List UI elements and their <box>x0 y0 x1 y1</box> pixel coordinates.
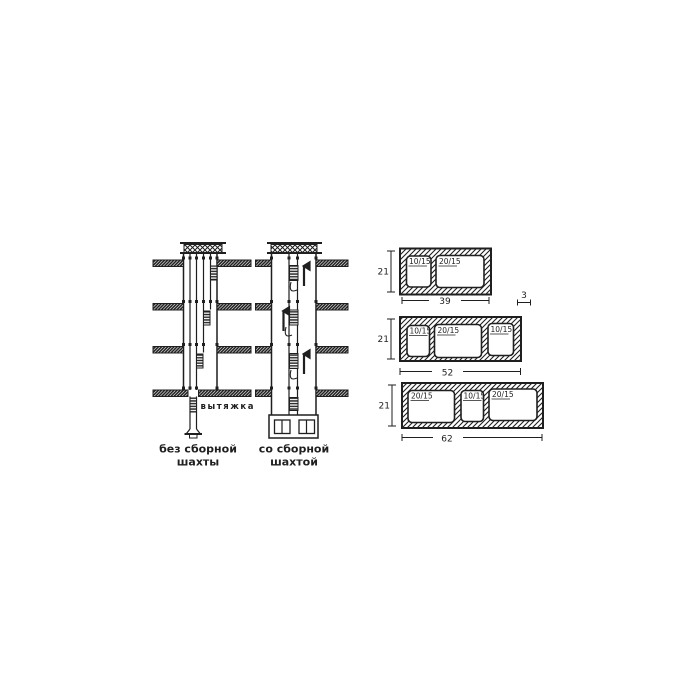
caption-without-line2: шахты <box>177 456 220 469</box>
width-dimension <box>400 368 521 375</box>
floor-slabs <box>256 260 349 397</box>
wall-thickness-label: 3 <box>521 291 527 301</box>
cell-size-label: 10/15 <box>409 257 431 266</box>
cell-size-label: 10/15 <box>491 325 513 334</box>
height-label: 21 <box>378 335 389 345</box>
cell-size-label: 20/15 <box>411 392 433 401</box>
height-label: 21 <box>379 402 390 412</box>
figure-page: вытяжка без сборной шахты <box>0 0 700 700</box>
block-section-39: 10/15 20/15 21 39 3 <box>378 249 531 308</box>
cap-hatch <box>184 245 222 253</box>
shaft-with-collector: со сборной шахтой <box>256 243 349 469</box>
caption-with-line1: со сборной <box>259 443 329 456</box>
shaft-without-collector: вытяжка без сборной шахты <box>153 243 255 469</box>
width-label: 39 <box>439 297 451 307</box>
cell-size-label: 20/15 <box>438 326 460 335</box>
floor-slabs <box>153 260 251 397</box>
cell-size-label: 20/15 <box>439 257 461 266</box>
caption-with-line2: шахтой <box>270 456 318 469</box>
width-dimension <box>402 434 542 441</box>
wall-thickness-dimension: 3 <box>518 291 531 306</box>
cap-hatch <box>271 245 317 253</box>
cell-size-label: 10/15 <box>410 327 432 336</box>
block-section-52: 10/15 20/15 10/15 21 52 <box>378 317 521 379</box>
caption-without-line1: без сборной <box>159 443 237 456</box>
cell-size-label: 20/15 <box>492 390 514 399</box>
cell-size-label: 10/15 <box>464 392 486 401</box>
base-block <box>269 415 318 438</box>
ventilation-diagram: вытяжка без сборной шахты <box>0 0 700 700</box>
exhaust-label: вытяжка <box>201 402 256 412</box>
height-label: 21 <box>378 268 389 278</box>
duct-outlet <box>185 429 203 438</box>
width-label: 62 <box>441 435 452 445</box>
width-label: 52 <box>442 369 453 379</box>
block-section-62: 20/15 10/15 20/15 21 62 <box>379 383 543 445</box>
